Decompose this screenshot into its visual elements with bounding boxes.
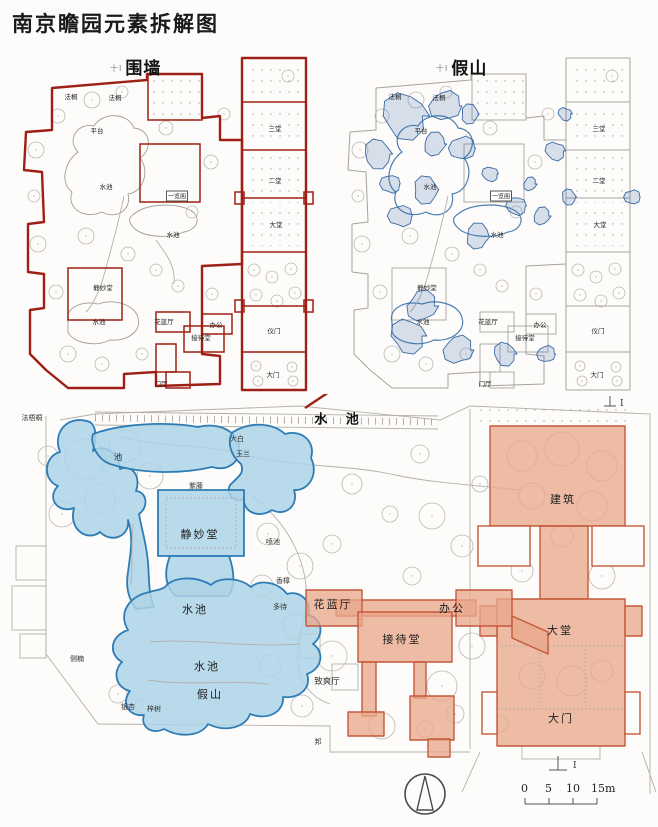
tree-center-dot — [616, 380, 617, 381]
svg-text:I: I — [620, 399, 624, 409]
plan-label: 建筑 — [550, 491, 576, 507]
plan-label: 邦 — [315, 737, 322, 747]
plan-label: 池 — [114, 451, 123, 463]
tree-center-dot — [479, 269, 480, 270]
rockery-mass — [380, 176, 401, 194]
tree-center-dot — [177, 285, 178, 286]
tree-center-dot — [191, 211, 192, 212]
plan-label: 水池 — [93, 316, 106, 326]
north-arrow — [405, 774, 445, 814]
section-mark-bottom: I — [549, 756, 577, 771]
tree-center-dot — [290, 268, 291, 269]
plan-label: 大门 — [591, 369, 604, 379]
plan-label: 接待堂 — [191, 332, 211, 342]
plan-label: 法桐 — [109, 92, 122, 102]
plan-label: 水池 — [100, 181, 113, 191]
plan-label: 花蓝厅 — [154, 316, 174, 326]
tree-center-dot — [267, 533, 268, 534]
section-mark: 十I — [436, 64, 448, 73]
plan-label: 银杏 — [121, 702, 135, 712]
panel-rockery-plan: 十I假山 — [330, 54, 652, 394]
panel-rockery-title: 假山 — [451, 59, 487, 79]
plan-label: 大堂 — [547, 622, 573, 638]
tree-center-dot — [601, 575, 602, 576]
plan-label: 法桐 — [65, 91, 78, 101]
tree-center-dot — [301, 705, 302, 706]
svg-text:I: I — [573, 761, 577, 771]
tree-center-dot — [351, 483, 352, 484]
tree-center-dot — [155, 269, 156, 270]
plan-label: 喷池 — [266, 537, 280, 547]
plan-label: 法桐 — [389, 91, 402, 101]
plan-label: 梓树 — [147, 704, 161, 714]
plan-label: 仪门 — [268, 325, 281, 335]
tree-center-dot — [276, 300, 277, 301]
rockery-mass — [468, 223, 491, 249]
tree-center-dot — [379, 291, 380, 292]
plan-label: 办公 — [210, 319, 223, 329]
plan-label: 平台 — [415, 125, 428, 135]
svg-text:0: 0 — [521, 782, 528, 795]
rockery-mass — [534, 207, 551, 225]
rockery-mass — [425, 132, 447, 156]
tree-center-dot — [37, 243, 38, 244]
plan-label: 香樟 — [276, 576, 290, 586]
plan-label: 假山 — [197, 686, 223, 702]
tree-center-dot — [85, 235, 86, 236]
tree-center-dot — [127, 253, 128, 254]
plan-label: 门厅 — [479, 378, 492, 388]
tree-center-dot — [61, 513, 62, 514]
tree-center-dot — [431, 515, 432, 516]
base-linework — [65, 62, 302, 344]
tree-center-dot — [579, 294, 580, 295]
tree-center-dot — [425, 363, 426, 364]
plan-label: 三堂 — [269, 123, 282, 133]
panel-wall-title: 围墙 — [125, 59, 161, 79]
tree-center-dot — [441, 685, 442, 686]
plan-label: 水池 — [424, 181, 437, 191]
plan-label: 大门 — [548, 710, 574, 726]
tree-center-dot — [611, 75, 612, 76]
section-mark: 十I — [110, 64, 122, 73]
plan-label: 水池 — [417, 316, 430, 326]
tree-center-dot — [55, 291, 56, 292]
tree-center-dot — [489, 127, 490, 128]
tree-center-dot — [253, 269, 254, 270]
plan-label: 二堂 — [593, 175, 606, 185]
tree-center-dot — [57, 115, 58, 116]
tree-center-dot — [255, 294, 256, 295]
tree-center-dot — [67, 353, 68, 354]
plan-label: 大白 — [230, 434, 244, 444]
plan-label: 一览阁 — [166, 191, 188, 202]
plan-label: 水池 — [491, 229, 504, 239]
tree-center-dot — [331, 543, 332, 544]
tree-center-dot — [292, 380, 293, 381]
tree-center-dot — [291, 366, 292, 367]
tree-center-dot — [615, 366, 616, 367]
panel-wall-header: 十I围墙 — [110, 54, 161, 79]
tree-center-dot — [299, 565, 300, 566]
tree-center-dot — [331, 655, 332, 656]
tree-center-dot — [411, 575, 412, 576]
tree-center-dot — [47, 455, 48, 456]
tree-center-dot — [294, 292, 295, 293]
plan-label: 一览阁 — [490, 191, 512, 202]
scale-bar: 0 5 10 15m — [521, 782, 616, 804]
tree-center-dot — [359, 149, 360, 150]
plan-label: 法桐 — [433, 92, 446, 102]
panel-bottom-plan: I I 0 5 10 15m — [0, 394, 658, 827]
tree-center-dot — [210, 161, 211, 162]
plan-label: 接待堂 — [383, 631, 422, 647]
tree-center-dot — [255, 365, 256, 366]
plan-label: 静妙堂 — [181, 526, 220, 542]
tree-center-dot — [257, 380, 258, 381]
tree-center-dot — [479, 483, 480, 484]
rockery-mass — [366, 139, 393, 169]
plan-label: 平台 — [91, 125, 104, 135]
rockery-mass — [482, 167, 499, 182]
tree-center-dot — [117, 693, 118, 694]
tree-center-dot — [361, 243, 362, 244]
rockery-mass — [624, 190, 641, 204]
tree-center-dot — [471, 645, 472, 646]
tree-center-dot — [579, 365, 580, 366]
plan-label: 花蓝厅 — [478, 316, 498, 326]
plan-label: 玉兰 — [236, 449, 250, 459]
plan-label: 大堂 — [594, 219, 607, 229]
tree-center-dot — [581, 380, 582, 381]
plan-label: 大堂 — [270, 219, 283, 229]
plan-label: 办公 — [439, 600, 465, 616]
page-title: 南京瞻园元素拆解图 — [12, 8, 219, 38]
tree-center-dot — [595, 276, 596, 277]
panel-rockery-header: 十I假山 — [436, 54, 487, 79]
tree-center-dot — [149, 475, 150, 476]
tree-center-dot — [33, 195, 34, 196]
plan-label: 侧楠 — [70, 654, 84, 664]
rockery-mass — [545, 142, 566, 161]
tree-center-dot — [121, 91, 122, 92]
rockery-mass — [448, 136, 475, 159]
plan-label: 水 池 — [314, 409, 366, 428]
tree-center-dot — [521, 570, 522, 571]
rockery-mass — [524, 177, 538, 191]
rockery-mass — [387, 206, 412, 227]
tree-center-dot — [419, 453, 420, 454]
plan-label: 花蓝厅 — [314, 596, 353, 612]
tree-center-dot — [101, 363, 102, 364]
tree-center-dot — [614, 268, 615, 269]
tree-center-dot — [600, 300, 601, 301]
svg-text:5: 5 — [545, 782, 552, 795]
plan-label: 办公 — [534, 319, 547, 329]
plan-label: 水池 — [167, 229, 180, 239]
tree-center-dot — [165, 127, 166, 128]
panel-wall-plan: 十I围墙 — [6, 54, 328, 394]
plan-label: 静妙堂 — [417, 282, 437, 292]
tree-center-dot — [501, 285, 502, 286]
plan-label: 门厅 — [155, 378, 168, 388]
zhanyuan-decomposition-diagram: 南京瞻园元素拆解图 十I围墙 — [0, 0, 658, 827]
tree-center-dot — [618, 292, 619, 293]
tree-center-dot — [547, 113, 548, 114]
tree-center-dot — [287, 75, 288, 76]
plan-label: 水池 — [194, 658, 220, 674]
tree-center-dot — [389, 513, 390, 514]
tree-center-dot — [223, 113, 224, 114]
rockery-mass — [495, 342, 518, 366]
tree-center-dot — [409, 235, 410, 236]
tree-center-dot — [271, 276, 272, 277]
svg-text:10: 10 — [566, 782, 580, 795]
building-element — [306, 426, 644, 757]
tree-center-dot — [577, 269, 578, 270]
plan-label: 致爽厅 — [314, 675, 340, 687]
plan-label: 接待堂 — [515, 332, 535, 342]
tree-center-dot — [91, 99, 92, 100]
plan-label: 水池 — [182, 601, 208, 617]
rockery-mass — [537, 345, 556, 361]
tree-center-dot — [461, 545, 462, 546]
tree-center-dot — [451, 253, 452, 254]
svg-text:15m: 15m — [591, 782, 616, 795]
tree-center-dot — [391, 353, 392, 354]
plan-label: 二堂 — [269, 175, 282, 185]
plan-label: 紫藤 — [189, 481, 203, 491]
tree-center-dot — [211, 293, 212, 294]
plan-label: 仪门 — [592, 325, 605, 335]
tree-center-dot — [35, 149, 36, 150]
plan-label: 三堂 — [593, 123, 606, 133]
tree-center-dot — [381, 115, 382, 116]
plan-label: 法梧桐 — [22, 413, 43, 423]
plan-label: 大门 — [267, 369, 280, 379]
wall-leader-line — [305, 394, 332, 408]
tree-center-dot — [357, 195, 358, 196]
plan-label: 静妙堂 — [93, 282, 113, 292]
tree-center-dot — [141, 353, 142, 354]
tree-center-dot — [535, 293, 536, 294]
tree-center-dot — [534, 161, 535, 162]
plan-label: 多待 — [273, 602, 287, 612]
